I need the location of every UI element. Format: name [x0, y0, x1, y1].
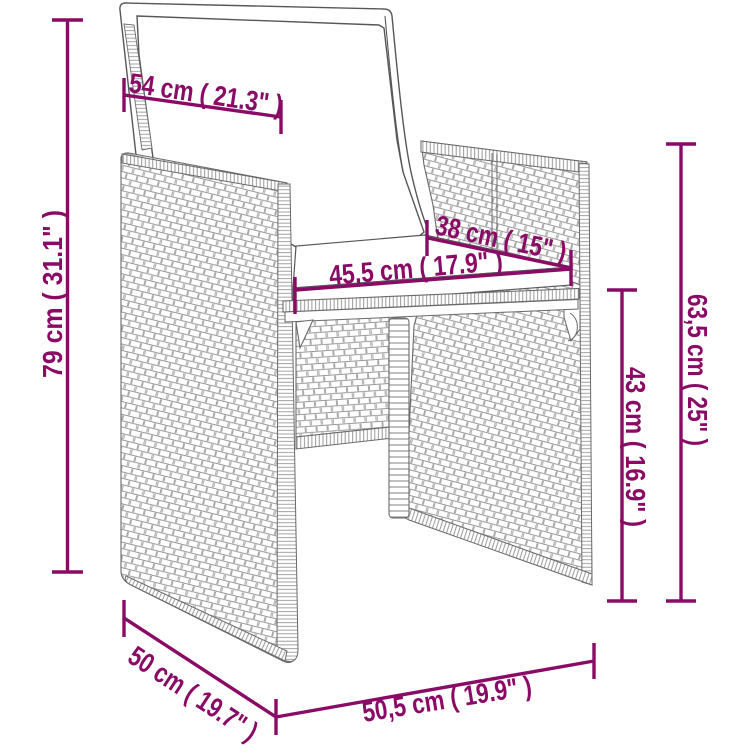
svg-text:79 cm ( 31.1" ): 79 cm ( 31.1" ): [37, 210, 68, 378]
svg-text:43 cm ( 16.9" ): 43 cm ( 16.9" ): [620, 367, 651, 527]
svg-text:63,5 cm ( 25" ): 63,5 cm ( 25" ): [682, 294, 713, 446]
